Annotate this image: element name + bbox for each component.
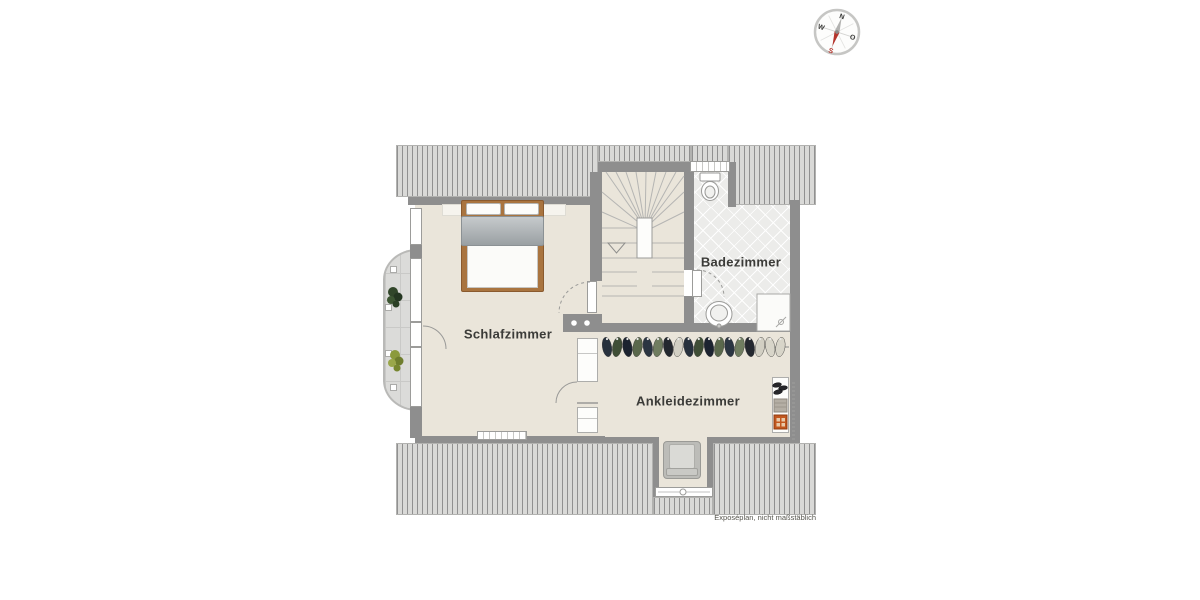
bathroom-alcove-floor (694, 172, 728, 207)
dressing-alcove-window (655, 487, 713, 497)
wall-hall-dots (563, 314, 602, 332)
bedroom-door-leaf (587, 281, 597, 313)
label-dressing: Ankleidezimmer (636, 394, 740, 409)
bed-blanket (461, 216, 544, 246)
cabinet-lower (577, 407, 598, 433)
storage-shelf (772, 377, 789, 433)
balcony-door-leaf (410, 322, 422, 347)
bedroom-radiator (477, 431, 527, 440)
roof-hatch-bottom-left (396, 443, 653, 515)
bedroom-left-window-upper (410, 208, 422, 245)
armchair-back (666, 468, 698, 476)
wall-dressing-bottom-left (603, 437, 655, 443)
balcony-post (385, 350, 392, 357)
bathroom-door-leaf (692, 270, 702, 297)
wall-stairs-top (598, 162, 694, 172)
balcony-post (390, 266, 397, 273)
wall-dressing-top (598, 323, 792, 332)
roof-hatch-top-stairs (598, 145, 691, 162)
wall-bedroom-right (590, 172, 602, 281)
wall-bathroom-left-upper (684, 162, 694, 270)
bedroom-left-window-lower (410, 347, 422, 407)
bathroom-alcove-window (690, 161, 730, 172)
compass-rose: N O S W (812, 7, 862, 57)
wall-bedroom-left-a (410, 245, 422, 258)
dressing-room-floor (598, 332, 792, 438)
bed-pillow-left (466, 203, 501, 215)
armchair-seat (669, 444, 695, 469)
stair-hall-floor (602, 172, 684, 324)
roof-hatch-top-alcove (691, 145, 728, 162)
cabinet-upper (577, 338, 598, 382)
roof-hatch-top-left (396, 145, 598, 197)
floorplan-canvas: Schlafzimmer Badezimmer Ankleidezimmer E… (0, 0, 1200, 600)
roof-hatch-bottom-right (713, 443, 816, 515)
wall-bedroom-left-b (410, 407, 422, 438)
bedroom-left-window-mid (410, 258, 422, 322)
balcony-post (385, 304, 392, 311)
watermark (792, 380, 795, 440)
label-bathroom: Badezimmer (701, 255, 781, 270)
wall-dressing-bottom-right (713, 437, 792, 443)
balcony-post (390, 384, 397, 391)
label-bedroom: Schlafzimmer (464, 327, 552, 342)
roof-hatch-top-right (728, 145, 816, 205)
plan-caption: Exposéplan, nicht maßstäblich (596, 513, 816, 522)
bed-pillow-right (504, 203, 539, 215)
wall-bathroom-left-lower (684, 296, 694, 331)
